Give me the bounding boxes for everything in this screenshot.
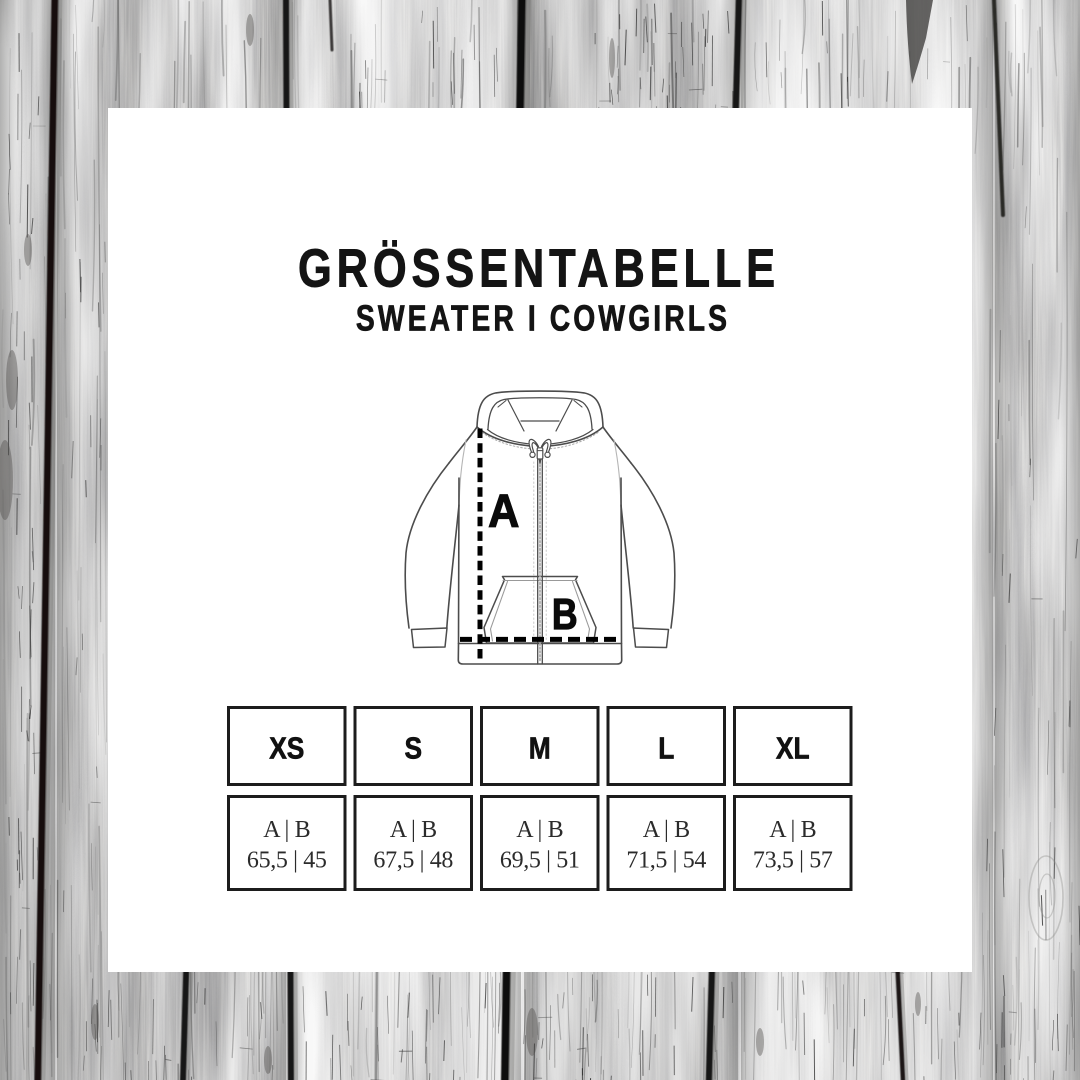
svg-text:71,5 | 54: 71,5 | 54 <box>626 848 706 874</box>
svg-text:M: M <box>529 732 551 766</box>
svg-text:L: L <box>658 732 674 766</box>
svg-text:A: A <box>488 484 519 537</box>
svg-text:A | B: A | B <box>643 817 690 843</box>
svg-text:SWEATER I COWGIRLS: SWEATER I COWGIRLS <box>356 297 730 338</box>
svg-text:A | B: A | B <box>516 817 563 843</box>
svg-text:XS: XS <box>269 732 304 766</box>
svg-text:69,5 | 51: 69,5 | 51 <box>500 848 580 874</box>
svg-text:A | B: A | B <box>263 817 310 843</box>
svg-text:A | B: A | B <box>769 817 816 843</box>
svg-text:XL: XL <box>776 732 810 766</box>
svg-text:S: S <box>404 732 422 766</box>
svg-text:65,5 | 45: 65,5 | 45 <box>247 848 327 874</box>
svg-text:B: B <box>552 591 578 639</box>
svg-text:GRÖSSENTABELLE: GRÖSSENTABELLE <box>298 239 780 298</box>
svg-text:73,5 | 57: 73,5 | 57 <box>753 848 833 874</box>
svg-text:A | B: A | B <box>390 817 437 843</box>
svg-text:67,5 | 48: 67,5 | 48 <box>373 848 453 874</box>
